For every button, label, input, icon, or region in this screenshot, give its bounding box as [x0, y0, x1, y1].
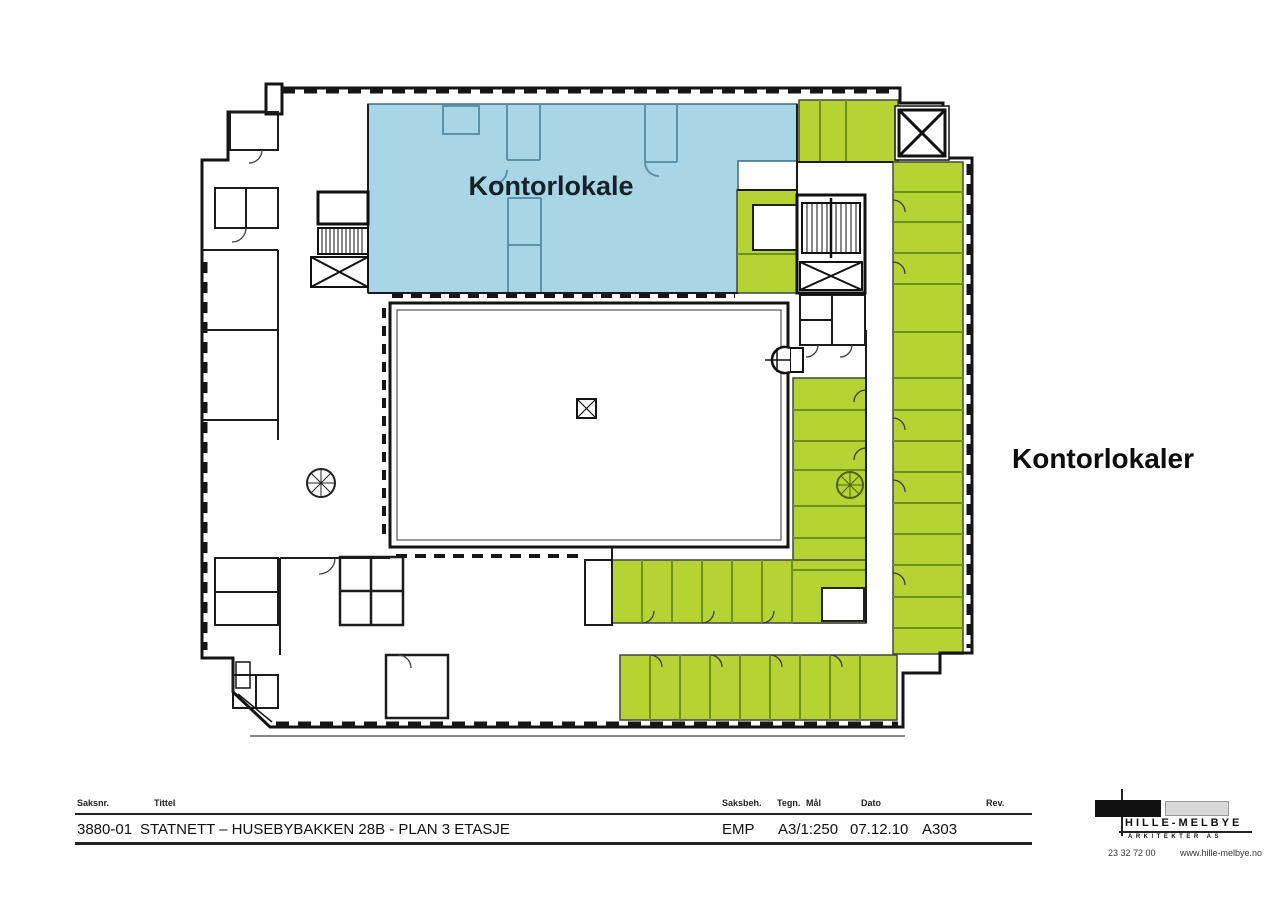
- handler-initials: EMP: [722, 821, 755, 838]
- left-stair-core: [311, 192, 368, 287]
- logo-mark-black: [1095, 800, 1161, 817]
- staircase-icon: [802, 198, 860, 258]
- courtyard: [384, 296, 788, 556]
- drawing-sheet: Kontorlokale Kontorlokaler Saksnr. Titte…: [0, 0, 1278, 900]
- drawing-number: A303: [922, 821, 957, 838]
- spiral-stair-icon: [837, 472, 863, 498]
- elevator-icon: [311, 257, 368, 287]
- green-zone-label: Kontorlokaler: [1012, 443, 1194, 474]
- drawing-date: 07.12.10: [850, 821, 908, 838]
- titleblock-label-saksnr: Saksnr.: [77, 798, 109, 808]
- titleblock-label-dato: Dato: [861, 798, 881, 808]
- spiral-stair-icon: [307, 469, 335, 497]
- staircase-icon: [318, 228, 368, 254]
- logo-phone: 23 32 72 00: [1108, 848, 1156, 858]
- drawing-title: STATNETT – HUSEBYBAKKEN 28B - PLAN 3 ETA…: [140, 821, 510, 838]
- project-number: 3880-01: [77, 821, 132, 838]
- blue-zone-label: Kontorlokale: [468, 171, 633, 201]
- titleblock-label-rev: Rev.: [986, 798, 1004, 808]
- logo-mark-gray: [1165, 801, 1229, 816]
- titleblock-label-saksbeh: Saksbeh.: [722, 798, 762, 808]
- titleblock-rule-top: [75, 813, 1032, 815]
- elevator-icon: [899, 110, 945, 156]
- top-right-elevator: [895, 106, 949, 160]
- titleblock-label-tegn: Tegn.: [777, 798, 800, 808]
- logo-website: www.hille-melbye.no: [1180, 848, 1262, 858]
- titleblock-rule-bottom: [75, 842, 1032, 845]
- logo-underline: [1119, 831, 1252, 833]
- shaft-top-left: [266, 84, 282, 114]
- right-stair-core: [797, 195, 865, 293]
- column-marker-icon: [577, 399, 596, 418]
- logo-name: HILLE-MELBYE: [1125, 817, 1242, 829]
- titleblock-label-maal: Mål: [806, 798, 821, 808]
- floor-plan-svg: Kontorlokale Kontorlokaler: [0, 0, 1278, 900]
- elevator-icon: [800, 262, 862, 290]
- drawing-scale: A3/1:250: [778, 821, 838, 838]
- logo-subtitle: ARKITEKTER AS: [1128, 834, 1222, 840]
- titleblock-label-tittel: Tittel: [154, 798, 175, 808]
